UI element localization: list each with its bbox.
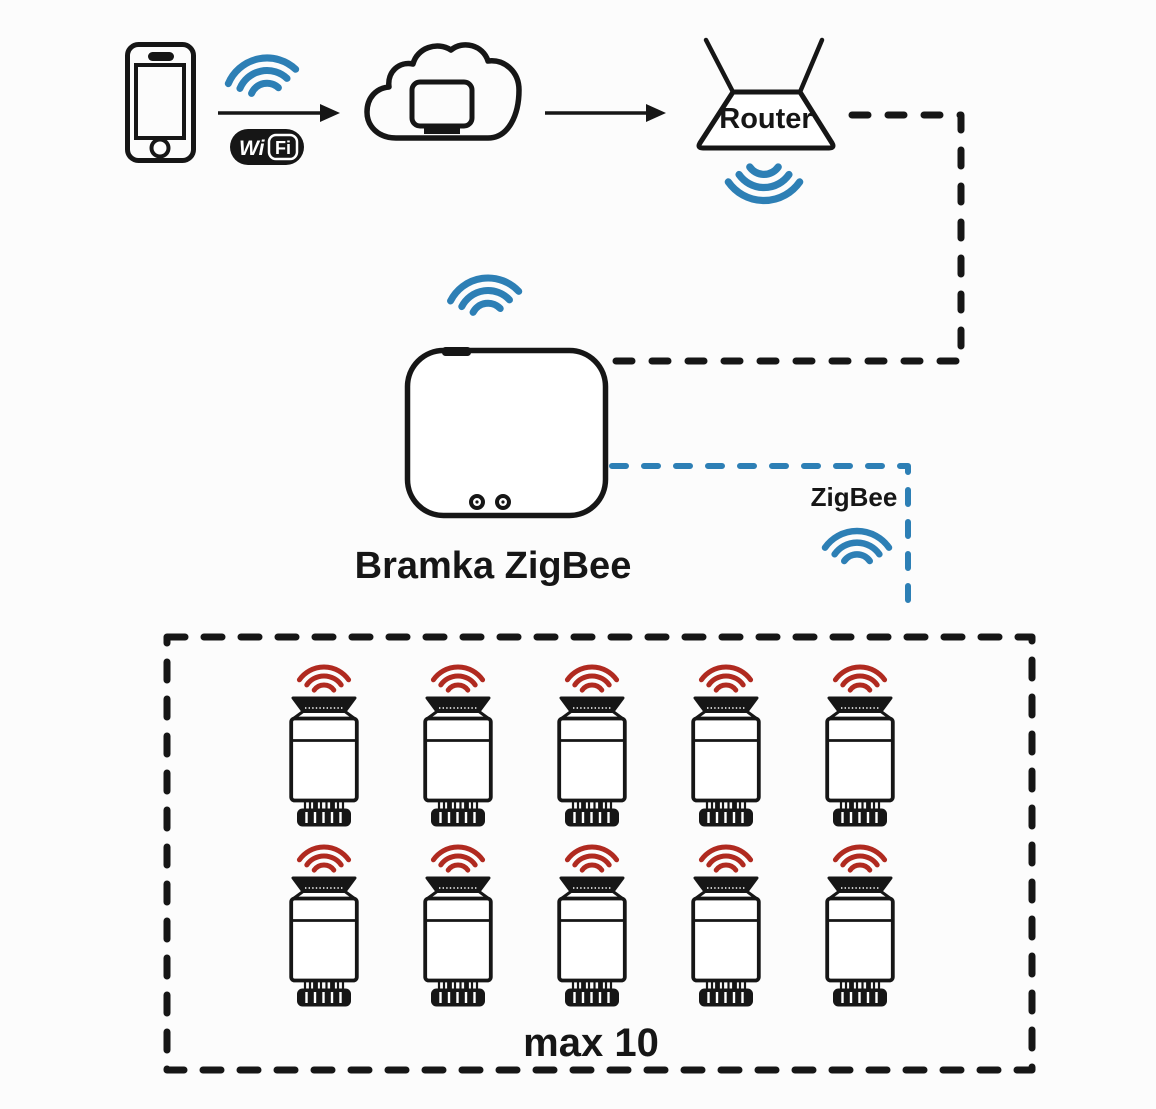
arrow-cloud-to-router	[545, 104, 666, 122]
wifi-logo-badge: Wi Fi	[230, 129, 304, 165]
smartphone-icon	[128, 45, 194, 161]
valve-grid	[291, 667, 893, 1006]
zigbee-gateway-icon	[408, 347, 606, 516]
gateway-wifi-signal-icon	[448, 274, 521, 316]
router-antenna-left	[706, 40, 733, 92]
radiator-thermostat-valve	[693, 847, 759, 1006]
radiator-thermostat-valve	[559, 667, 625, 826]
diagram-canvas: Wi Fi Router Bramka ZigBee Zi	[0, 0, 1156, 1109]
wifi-badge-wi: Wi	[239, 137, 266, 160]
router-icon: Router	[699, 40, 833, 148]
max-count-label: max 10	[523, 1021, 659, 1065]
radiator-thermostat-valve	[693, 667, 759, 826]
router-antenna-right	[800, 40, 822, 92]
phone-home-button	[152, 140, 169, 157]
gateway-slot	[442, 347, 471, 356]
radiator-thermostat-valve	[559, 847, 625, 1006]
router-label: Router	[719, 103, 812, 135]
radiator-thermostat-valve	[425, 667, 491, 826]
link-router-to-gateway	[612, 115, 961, 361]
radiator-thermostat-valve	[425, 847, 491, 1006]
phone-screen	[136, 65, 184, 138]
radiator-thermostat-valve	[291, 667, 357, 826]
zigbee-label: ZigBee	[811, 482, 898, 512]
phone-speaker	[148, 52, 174, 61]
cloud-monitor	[412, 82, 472, 126]
gateway-label: Bramka ZigBee	[355, 545, 632, 587]
arrow-phone-to-cloud	[218, 104, 340, 122]
radiator-thermostat-valve	[291, 847, 357, 1006]
zigbee-signal-icon	[825, 531, 889, 561]
router-wifi-signal-icon	[728, 167, 799, 201]
wifi-badge-fi: Fi	[275, 138, 291, 158]
wifi-signal-icon	[225, 52, 299, 98]
radiator-thermostat-valve	[827, 847, 893, 1006]
zigbee-system-diagram: Wi Fi Router Bramka ZigBee Zi	[0, 0, 1156, 1109]
cloud-server-icon	[367, 45, 519, 138]
radiator-thermostat-valve	[827, 667, 893, 826]
cloud-monitor-stand	[424, 126, 460, 134]
